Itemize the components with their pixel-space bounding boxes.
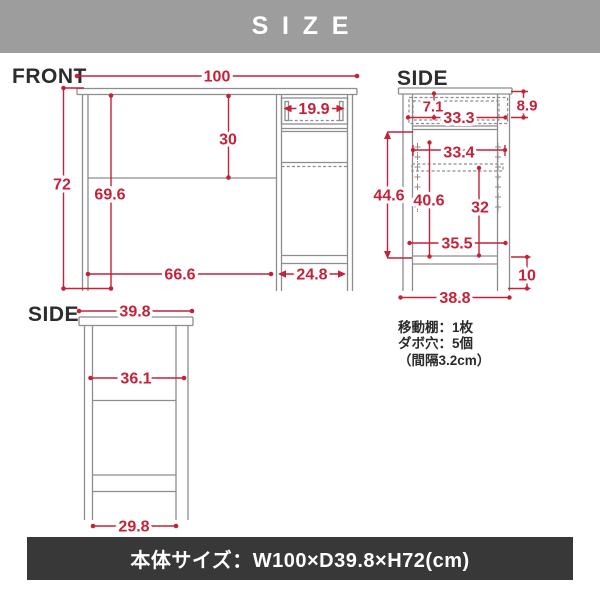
front-view-drawing: 100 72 69.6 30 19.9 66.6 24.8 [0, 60, 395, 305]
size-banner-title: SIZE [238, 12, 362, 41]
front-width-dim: 100 [204, 69, 231, 86]
side-upper-inner-height-dim: 44.6 [373, 188, 404, 205]
front-drawer-width-dim: 19.9 [298, 101, 329, 118]
side-upper-shelf-depth-dim: 33.4 [443, 145, 474, 162]
side-upper-bottom-inner-depth-dim: 35.5 [441, 236, 472, 253]
side-lower-view-drawing: 39.8 36.1 29.8 [20, 300, 240, 535]
note-dowel-holes: ダボ穴：5個 [398, 336, 568, 352]
side-lower-bottom-depth-dim: 29.8 [118, 519, 149, 536]
overall-size-text: 本体サイズ：W100×D39.8×H72(cm) [130, 544, 469, 573]
side-lower-inner-depth-dim: 36.1 [120, 371, 151, 388]
side-upper-door-inner-height-dim: 32 [471, 200, 489, 217]
front-inner-height-dim: 69.6 [94, 187, 125, 204]
side-lower-top-depth-dim: 39.8 [119, 304, 150, 321]
side-upper-drawer-depth-dim: 33.3 [443, 110, 474, 127]
size-banner: SIZE [0, 0, 600, 53]
note-movable-shelf: 移動棚：1枚 [398, 320, 568, 336]
front-hidden-lines [282, 121, 348, 167]
front-left-span-dim: 66.6 [164, 267, 195, 284]
front-dimensions: 100 72 69.6 30 19.9 66.6 24.8 [53, 69, 359, 291]
side-lower-furniture-outline [79, 317, 193, 520]
overall-size-bar: 本体サイズ：W100×D39.8×H72(cm) [27, 537, 573, 580]
front-height-dim: 72 [53, 177, 71, 194]
side-upper-top-gap-dim: 7.1 [423, 99, 444, 116]
side-upper-dimensions: 7.1 33.3 8.9 33.4 44.6 40.6 32 35.5 10 3… [373, 89, 537, 307]
side-lower-dimensions: 39.8 36.1 29.8 [77, 304, 195, 536]
side-upper-left-inner-height-dim: 40.6 [413, 193, 444, 210]
side-upper-leg-height-dim: 10 [518, 268, 536, 285]
side-upper-drawer-front-height-dim: 8.9 [517, 98, 538, 115]
side-upper-view-drawing: 7.1 33.3 8.9 33.4 44.6 40.6 32 35.5 10 3… [370, 60, 545, 310]
note-pitch: （間隔3.2cm） [398, 353, 568, 369]
front-upper-inner-height-dim: 30 [219, 132, 237, 149]
front-right-span-dim: 24.8 [296, 267, 327, 284]
spec-notes: 移動棚：1枚 ダボ穴：5個 （間隔3.2cm） [398, 320, 568, 369]
side-upper-base-depth-dim: 38.8 [439, 290, 470, 307]
